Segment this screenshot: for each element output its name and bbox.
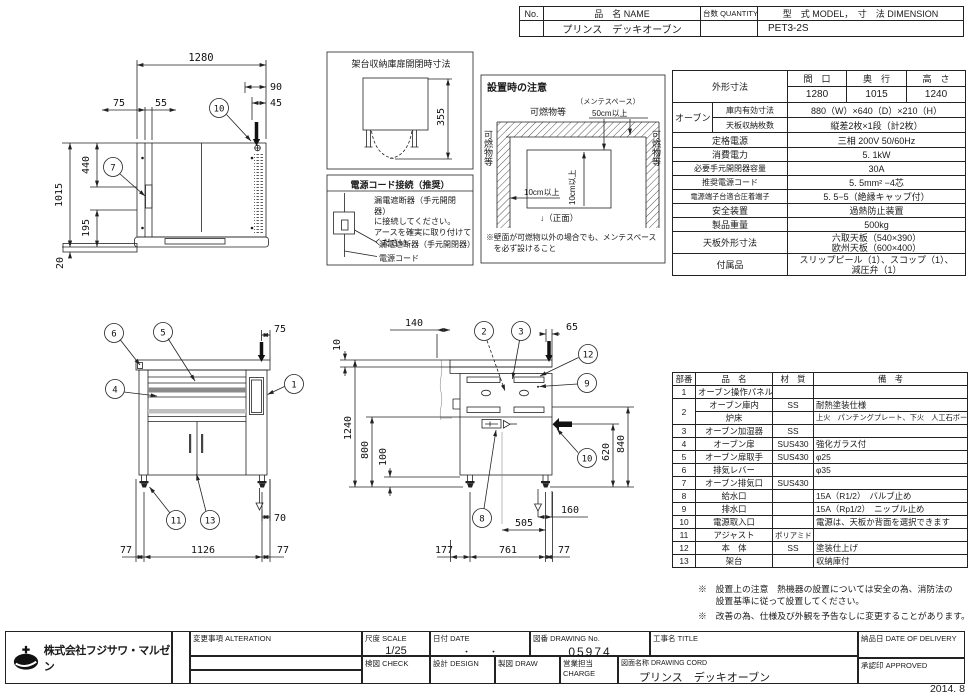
drawing-name-cell: 図面名称 DRAWING CORD プリンス デッキオーブン [618, 656, 858, 684]
spec-power-label: 定格電源 [673, 133, 788, 148]
part-no: 9 [673, 503, 696, 516]
parts-row: 8給水口15A（R1/2） バルブ止め [673, 490, 968, 503]
dim-s140: 140 [405, 318, 423, 329]
combustible-right-label: 可燃物等 [650, 130, 663, 194]
dim-1280: 1280 [188, 52, 213, 64]
part-name: 排気レバー [696, 464, 773, 477]
part-no: 4 [673, 438, 696, 451]
part-name: オーブン加湿器 [696, 425, 773, 438]
dim-1015: 1015 [54, 183, 65, 207]
scale-cell: 尺度 SCALE 1/25 [362, 631, 430, 656]
parts-row: 3オーブン加湿器SS [673, 425, 968, 438]
parts-row: 5オーブン扉取手SUS430φ25 [673, 451, 968, 464]
spec-col-width: 間 口 [788, 71, 847, 87]
spec-breaker-label: 必要手元開閉器容量 [673, 162, 788, 176]
balloon-7-label: 7 [110, 164, 115, 174]
part-name: 排水口 [696, 503, 773, 516]
part-note: 耐熱塗装仕様 [814, 399, 968, 412]
maintenance-space-label: （メンテスペース） [576, 97, 640, 107]
dim-45: 45 [270, 98, 282, 109]
spec-tray-value: 縦差2枚×1段（計2枚） [788, 118, 966, 133]
parts-col-no: 部番 [673, 373, 696, 386]
header-name-label: 品 名 NAME [544, 7, 701, 21]
delivery-date-cell: 納品日 DATE OF DELIVERY [858, 631, 965, 658]
spec-width-value: 1280 [788, 87, 847, 103]
parts-row: 7オーブン排気口SUS430 [673, 477, 968, 490]
balloon-9-label: 9 [584, 380, 589, 390]
balloon-4-label: 4 [112, 386, 117, 396]
drawing-sheet: 1280 90 45 75 55 440 195 1015 20 10 7 75… [0, 0, 975, 692]
spec-weight-value: 500kg [788, 218, 966, 232]
caution-note-1: ※ 設置上の注意 熱機器の設置については安全の為、消防法の 設置基準に従って設置… [698, 584, 972, 607]
part-note: 強化ガラス付 [814, 438, 968, 451]
install-box-note: ※壁面が可燃物以外の場合でも、メンテスペース を必ず設けること [486, 232, 662, 254]
draw-cell: 製図 DRAW [495, 656, 560, 684]
dim-s177: 177 [435, 545, 453, 556]
caution-note-2: ※ 改善の為、仕様及び外観を予告なしに変更することがあります。 [698, 609, 972, 622]
spec-consumption-value: 5. 1kW [788, 148, 966, 162]
part-note: φ35 [814, 464, 968, 477]
part-note: 電源は、天板か背面を選択できます [814, 516, 968, 529]
spec-safety-label: 安全装置 [673, 204, 788, 218]
spec-cord-value: 5. 5mm² −4芯 [788, 176, 966, 190]
design-cell: 設計 DESIGN [430, 656, 495, 684]
part-material [773, 503, 814, 516]
dim-440: 440 [81, 156, 92, 174]
scale-label: 尺度 SCALE [363, 632, 429, 645]
dim-75: 75 [113, 98, 125, 109]
balloon-6-label: 6 [111, 330, 116, 340]
spec-accessory-value: スリップピール（1）、スコップ（1）、 減圧弁（1） [788, 254, 966, 276]
spec-tray-label: 天板収納枚数 [713, 118, 788, 133]
issue-date: 2014. 8 [890, 683, 965, 692]
dim-f70: 70 [274, 513, 286, 524]
drawing-name-value: プリンス デッキオーブン [619, 669, 857, 685]
dim-195: 195 [81, 219, 92, 237]
dim-f75: 75 [274, 324, 286, 335]
part-name: 炉床 [696, 412, 773, 425]
drain-arrow [535, 504, 542, 511]
breaker-symbol [334, 212, 355, 234]
spec-weight-label: 製品重量 [673, 218, 788, 232]
part-note [814, 386, 968, 399]
part-material: SUS430 [773, 477, 814, 490]
part-no: 7 [673, 477, 696, 490]
parts-row: 12本 体SS塗装仕上げ [673, 542, 968, 555]
part-material [773, 516, 814, 529]
part-name: オーブン排気口 [696, 477, 773, 490]
vent-grille [254, 153, 263, 233]
parts-row: 1オーブン操作パネル [673, 386, 968, 399]
header-no: No. [520, 7, 544, 21]
header-qty-label: 台数 QUANTITY [701, 7, 758, 21]
parts-table: 部番 品 名 材 質 備 考 1オーブン操作パネル 2オーブン庫内SS耐熱塗装仕… [672, 372, 967, 568]
dim-f77l: 77 [120, 545, 132, 556]
dim-20: 20 [55, 257, 66, 269]
drawing-no-cell: 図番 DRAWING No. 05974 [530, 631, 650, 656]
parts-row: 11アジャストポリアミド [673, 529, 968, 542]
dim-s1240: 1240 [343, 416, 354, 440]
cabinet-handle-right [201, 434, 203, 453]
company-logo-icon [12, 643, 44, 673]
part-no: 2 [673, 399, 696, 425]
part-name: 本 体 [696, 542, 773, 555]
parts-row: 炉床上火 パンチングプレート、下火 人工石ボード [673, 412, 968, 425]
power-knockout [482, 390, 491, 396]
part-note: 塗装仕上げ [814, 542, 968, 555]
power-box-cord-label: 電源コード [379, 253, 419, 264]
company-logo-cell: 株式会社フジサワ・マルゼン [5, 631, 172, 684]
front-view-drawing: 75 70 77 1126 77 6 5 4 1 11 13 [105, 323, 304, 563]
part-note [814, 425, 968, 438]
part-name: オーブン扉 [696, 438, 773, 451]
parts-row: 9排水口15A（Rp1/2） ニップル止め [673, 503, 968, 516]
spec-table: 外形寸法 間 口 奥 行 高 さ 1280 1015 1240 オーブン 庫内有… [672, 70, 965, 276]
part-note: 15A（R1/2） バルブ止め [814, 490, 968, 503]
dim-s800: 800 [360, 441, 371, 459]
parts-row: 13架台収納庫付 [673, 555, 968, 568]
exhaust-lever-side [453, 399, 460, 409]
spec-terminal-label: 電源端子台適合圧着端子 [673, 190, 788, 204]
part-note: 収納庫付 [814, 555, 968, 568]
rear-inlet-arrow [553, 418, 573, 431]
front-direction-label: ↓（正面） [540, 212, 578, 224]
header-table: No. 品 名 NAME 台数 QUANTITY 型 式 MODEL， 寸 法 … [519, 6, 963, 37]
spec-terminal-value: 5. 5−5（絶縁キャップ付） [788, 190, 966, 204]
parts-col-name: 品 名 [696, 373, 773, 386]
drawing-name-label: 図面名称 DRAWING CORD [619, 657, 857, 669]
balloon-13-label: 13 [205, 517, 216, 527]
dim-f77r: 77 [277, 545, 289, 556]
dim-s10: 10 [332, 339, 343, 351]
part-name: アジャスト [696, 529, 773, 542]
part-material: SUS430 [773, 451, 814, 464]
part-material [773, 386, 814, 399]
spec-depth-value: 1015 [847, 87, 907, 103]
spec-consumption-label: 消費電力 [673, 148, 788, 162]
dim-355: 355 [436, 108, 447, 126]
drawing-no-label: 図番 DRAWING No. [531, 632, 649, 645]
date-label: 日付 DATE [431, 632, 529, 645]
dim-f1126: 1126 [191, 545, 215, 556]
power-box-breaker-label: 漏電遮断器（手元開閉器） [379, 239, 475, 250]
parts-col-note: 備 考 [814, 373, 968, 386]
rear-view-drawing: 10 140 65 1240 800 100 620 840 160 505 1… [332, 318, 634, 562]
balloon-10-label: 10 [214, 105, 225, 115]
part-name: 電源取入口 [696, 516, 773, 529]
clearance-10cm-vertical: 10cm以上 [568, 169, 577, 205]
dim-s65: 65 [566, 322, 578, 333]
cabinet-handle-left [189, 434, 191, 453]
spec-cord-label: 推奨電源コード [673, 176, 788, 190]
clearance-10cm-label: 10cm以上 [524, 187, 560, 198]
part-material: SUS430 [773, 438, 814, 451]
header-no-value [520, 21, 544, 37]
alteration-row-2 [190, 670, 362, 684]
part-name: 架台 [696, 555, 773, 568]
part-note: φ25 [814, 451, 968, 464]
dim-label: ， 寸 法 DIMENSION [844, 9, 938, 19]
part-note [814, 529, 968, 542]
approved-cell: 承認印 APPROVED [858, 658, 965, 684]
balloon-5-label: 5 [160, 329, 165, 339]
balloon-1-label: 1 [291, 381, 296, 391]
parts-col-material: 材 質 [773, 373, 814, 386]
spec-height-value: 1240 [907, 87, 966, 103]
balloon-11-label: 11 [171, 517, 182, 527]
spec-safety-value: 過熱防止装置 [788, 204, 966, 218]
part-no: 8 [673, 490, 696, 503]
charge-cell: 営業担当 CHARGE [560, 656, 618, 684]
parts-row: 2オーブン庫内SS耐熱塗装仕様 [673, 399, 968, 412]
part-material: SS [773, 425, 814, 438]
power-box-title: 電源コード接続（推奨） [328, 178, 472, 191]
top-view-drawing: 1280 90 45 75 55 440 195 1015 20 10 7 [54, 52, 282, 269]
part-material [773, 464, 814, 477]
part-no: 10 [673, 516, 696, 529]
spec-col-height: 高 さ [907, 71, 966, 87]
spec-oven-label: オーブン [673, 103, 713, 133]
rear-vent [467, 377, 500, 383]
balloon-12-label: 12 [583, 351, 594, 361]
dim-s761: 761 [499, 545, 517, 556]
parts-row: 6排気レバーφ35 [673, 464, 968, 477]
spec-col-depth: 奥 行 [847, 71, 907, 87]
spec-inner-value: 880（W）×640（D）×210（H） [788, 103, 966, 118]
check-cell: 検図 CHECK [362, 656, 430, 684]
dim-s100: 100 [378, 448, 389, 466]
part-note: 上火 パンチングプレート、下火 人工石ボード [814, 412, 968, 425]
header-qty-value [701, 21, 758, 37]
part-note [814, 477, 968, 490]
part-name: オーブン操作パネル [696, 386, 773, 399]
install-box-title: 設置時の注意 [487, 79, 547, 94]
balloon-8-label: 8 [479, 515, 484, 525]
model-value: PET3-2S [758, 21, 964, 37]
part-material: SS [773, 399, 814, 412]
part-material [773, 555, 814, 568]
balloon-3-label: 3 [518, 328, 523, 338]
spec-trayouter-value: 六取天板（540×390） 欧州天板（600×400） [788, 232, 966, 254]
dim-s840: 840 [616, 435, 627, 453]
part-no: 13 [673, 555, 696, 568]
dim-s77: 77 [558, 545, 570, 556]
part-material: SS [773, 542, 814, 555]
dim-s505: 505 [515, 518, 533, 529]
part-material: ポリアミド [773, 529, 814, 542]
dim-s160: 160 [561, 505, 579, 516]
alteration-cell: 変更事項 ALTERATION [190, 631, 362, 656]
spec-size-label: 外形寸法 [673, 71, 788, 103]
title-cell: 工事名 TITLE [650, 631, 858, 656]
parts-row: 10電源取入口電源は、天板か背面を選択できます [673, 516, 968, 529]
part-no: 12 [673, 542, 696, 555]
balloon-10-rear-label: 10 [582, 455, 593, 465]
parts-row: 4オーブン扉SUS430強化ガラス付 [673, 438, 968, 451]
spec-trayouter-label: 天板外形寸法 [673, 232, 788, 254]
company-name: 株式会社フジサワ・マルゼン [44, 642, 171, 674]
part-note: 15A（Rp1/2） ニップル止め [814, 503, 968, 516]
part-name: オーブン庫内 [696, 399, 773, 412]
revision-mark-column [172, 631, 190, 684]
model-label: 型 式 MODEL [783, 9, 845, 19]
spec-breaker-value: 30A [788, 162, 966, 176]
part-no: 1 [673, 386, 696, 399]
dim-s620: 620 [601, 443, 612, 461]
part-material [773, 490, 814, 503]
balloon-2-label: 2 [481, 328, 486, 338]
part-no: 11 [673, 529, 696, 542]
rack-box-title: 架台収納庫扉開閉時寸法 [335, 57, 467, 70]
oven-door-handle-bar [148, 388, 246, 393]
part-name: オーブン扉取手 [696, 451, 773, 464]
product-name: プリンス デッキオーブン [544, 21, 701, 37]
part-no: 5 [673, 451, 696, 464]
part-no: 3 [673, 425, 696, 438]
combustible-top-label: 可燃物等 [530, 105, 566, 118]
spec-power-value: 三相 200V 50/60Hz [788, 133, 966, 148]
part-no: 6 [673, 464, 696, 477]
spec-accessory-label: 付属品 [673, 254, 788, 276]
dim-90: 90 [270, 82, 282, 93]
date-cell: 日付 DATE ・ ・ [430, 631, 530, 656]
part-material [773, 412, 814, 425]
dim-55: 55 [155, 98, 167, 109]
alteration-row-1 [190, 656, 362, 670]
spec-inner-label: 庫内有効寸法 [713, 103, 788, 118]
header-model-label: 型 式 MODEL， 寸 法 DIMENSION [758, 7, 964, 21]
part-name: 給水口 [696, 490, 773, 503]
combustible-left-label: 可燃物等 [482, 130, 495, 194]
clearance-50cm-label: 50cm以上 [592, 108, 628, 119]
